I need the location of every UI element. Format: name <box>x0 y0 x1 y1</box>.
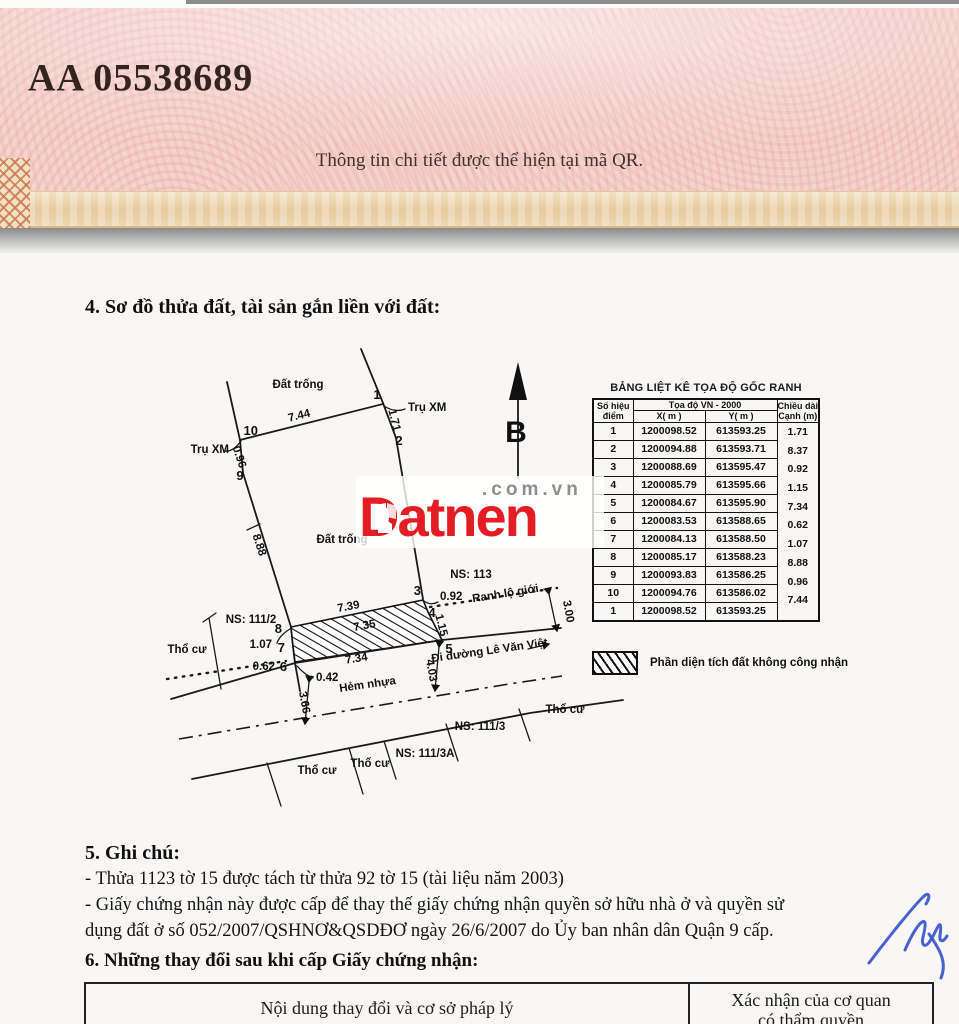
cell-y: 613593.25 <box>705 422 777 440</box>
cell-y: 613595.66 <box>705 476 777 494</box>
cell-point: 9 <box>593 566 633 584</box>
watermark-suffix: .com.vn <box>482 479 582 501</box>
cell-x: 1200085.79 <box>633 476 705 494</box>
scan-edge-line <box>186 0 959 4</box>
certificate-pink-band: AA 05538689 Thông tin chi tiết được thể … <box>0 8 959 228</box>
length-value: 7.44 <box>778 594 819 606</box>
section6-title: 6. Những thay đổi sau khi cấp Giấy chứng… <box>85 950 478 972</box>
legend-label: Phần diện tích đất không công nhận <box>650 657 848 669</box>
note-line: - Thửa 1123 tờ 15 được tách từ thửa 92 t… <box>85 869 915 890</box>
certificate-page: AA 05538689 Thông tin chi tiết được thể … <box>0 0 959 1024</box>
cell-x: 1200085.17 <box>633 548 705 566</box>
length-value: 0.62 <box>778 519 819 531</box>
cell-y: 613586.25 <box>705 566 777 584</box>
length-value: 0.96 <box>778 576 819 588</box>
cell-x: 1200098.52 <box>633 422 705 440</box>
cell-point: 10 <box>593 584 633 602</box>
cell-x: 1200094.76 <box>633 584 705 602</box>
watermark: Datnen .com.vn <box>356 476 604 548</box>
col-header-x: X( m ) <box>633 411 705 422</box>
cell-x: 1200088.69 <box>633 458 705 476</box>
serial-number: AA 05538689 <box>28 55 253 101</box>
hatch-swatch-icon <box>592 651 638 675</box>
cell-x: 1200083.53 <box>633 512 705 530</box>
length-value: 8.88 <box>778 557 819 569</box>
length-value: 1.71 <box>778 426 819 438</box>
cell-x: 1200098.52 <box>633 602 705 621</box>
length-value: 8.37 <box>778 445 819 457</box>
length-value: 7.34 <box>778 501 819 513</box>
watermark-logo-icon <box>373 503 399 537</box>
cell-y: 613588.65 <box>705 512 777 530</box>
cell-point: 3 <box>593 458 633 476</box>
ornamental-corner-lattice <box>0 158 30 228</box>
cell-y: 613588.50 <box>705 530 777 548</box>
length-value: 1.07 <box>778 538 819 550</box>
coordinate-table: BẢNG LIỆT KÊ TỌA ĐỘ GỐC RANH Số hiệu điể… <box>592 382 820 622</box>
cell-y: 613586.02 <box>705 584 777 602</box>
note-line: - Giấy chứng nhận này được cấp để thay t… <box>85 895 915 916</box>
section5-title: 5. Ghi chú: <box>85 842 180 865</box>
note-line: dụng đất ở số 052/2007/QSHNƠ&QSDĐƠ ngày … <box>85 921 915 942</box>
confirm-line2: có thẩm quyền <box>690 1010 932 1024</box>
map-legend: Phần diện tích đất không công nhận <box>592 651 848 675</box>
section4-title: 4. Sơ đồ thửa đất, tài sản gắn liền với … <box>85 296 440 319</box>
cell-point: 1 <box>593 422 633 440</box>
changes-table-col-confirm: Xác nhận của cơ quan có thẩm quyền <box>690 984 932 1024</box>
col-header-point: Số hiệu điểm <box>593 399 633 422</box>
cell-y: 613595.47 <box>705 458 777 476</box>
cell-y: 613593.25 <box>705 602 777 621</box>
cell-y: 613593.71 <box>705 440 777 458</box>
cell-point: 1 <box>593 602 633 621</box>
changes-table: Nội dung thay đổi và cơ sở pháp lý Xác n… <box>84 982 934 1024</box>
col-header-group: Tọa độ VN - 2000 <box>633 399 777 411</box>
cell-lengths: 1.71 8.37 0.92 1.15 7.34 0.62 1.07 8.88 … <box>777 422 819 621</box>
cell-x: 1200084.13 <box>633 530 705 548</box>
length-value: 1.15 <box>778 482 819 494</box>
length-values: 1.71 8.37 0.92 1.15 7.34 0.62 1.07 8.88 … <box>778 423 819 610</box>
coordinate-table-grid: Số hiệu điểm Tọa độ VN - 2000 Chiều dài … <box>592 398 820 622</box>
scan-shadow-divider <box>0 228 959 253</box>
cell-y: 613595.90 <box>705 494 777 512</box>
col-header-length: Chiều dài Cạnh (m) <box>777 399 819 422</box>
confirm-line1: Xác nhận của cơ quan <box>690 990 932 1010</box>
cell-point: 2 <box>593 440 633 458</box>
coordinate-table-title: BẢNG LIỆT KÊ TỌA ĐỘ GỐC RANH <box>592 382 820 394</box>
length-value: 0.92 <box>778 463 819 475</box>
col-header-y: Y( m ) <box>705 411 777 422</box>
cell-point: 8 <box>593 548 633 566</box>
qr-note: Thông tin chi tiết được thể hiện tại mã … <box>0 150 959 172</box>
table-row: 1 1200098.52 613593.25 1.71 8.37 0.92 1.… <box>593 422 819 440</box>
changes-table-col-content: Nội dung thay đổi và cơ sở pháp lý <box>86 984 690 1024</box>
ornamental-border <box>0 191 959 228</box>
cell-x: 1200094.88 <box>633 440 705 458</box>
cell-x: 1200084.67 <box>633 494 705 512</box>
cell-y: 613588.23 <box>705 548 777 566</box>
cell-x: 1200093.83 <box>633 566 705 584</box>
